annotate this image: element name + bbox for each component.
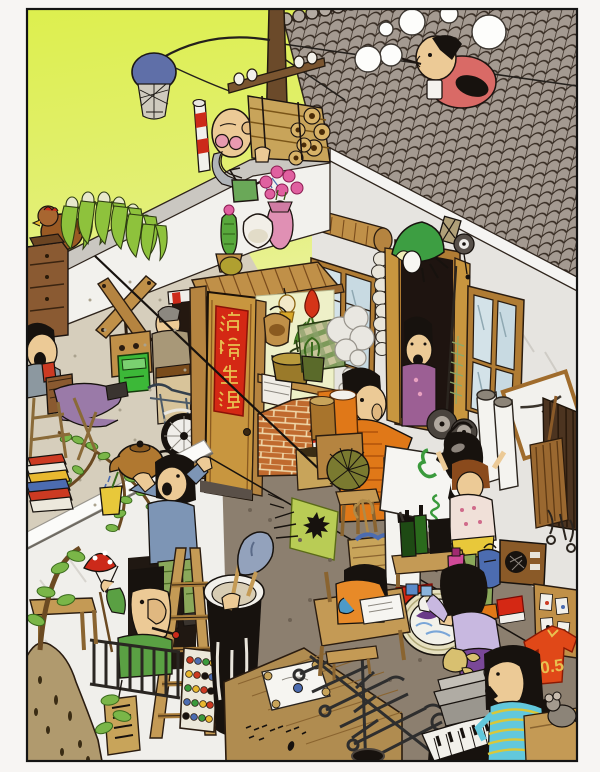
svg-text:0.5: 0.5 [539,655,565,677]
